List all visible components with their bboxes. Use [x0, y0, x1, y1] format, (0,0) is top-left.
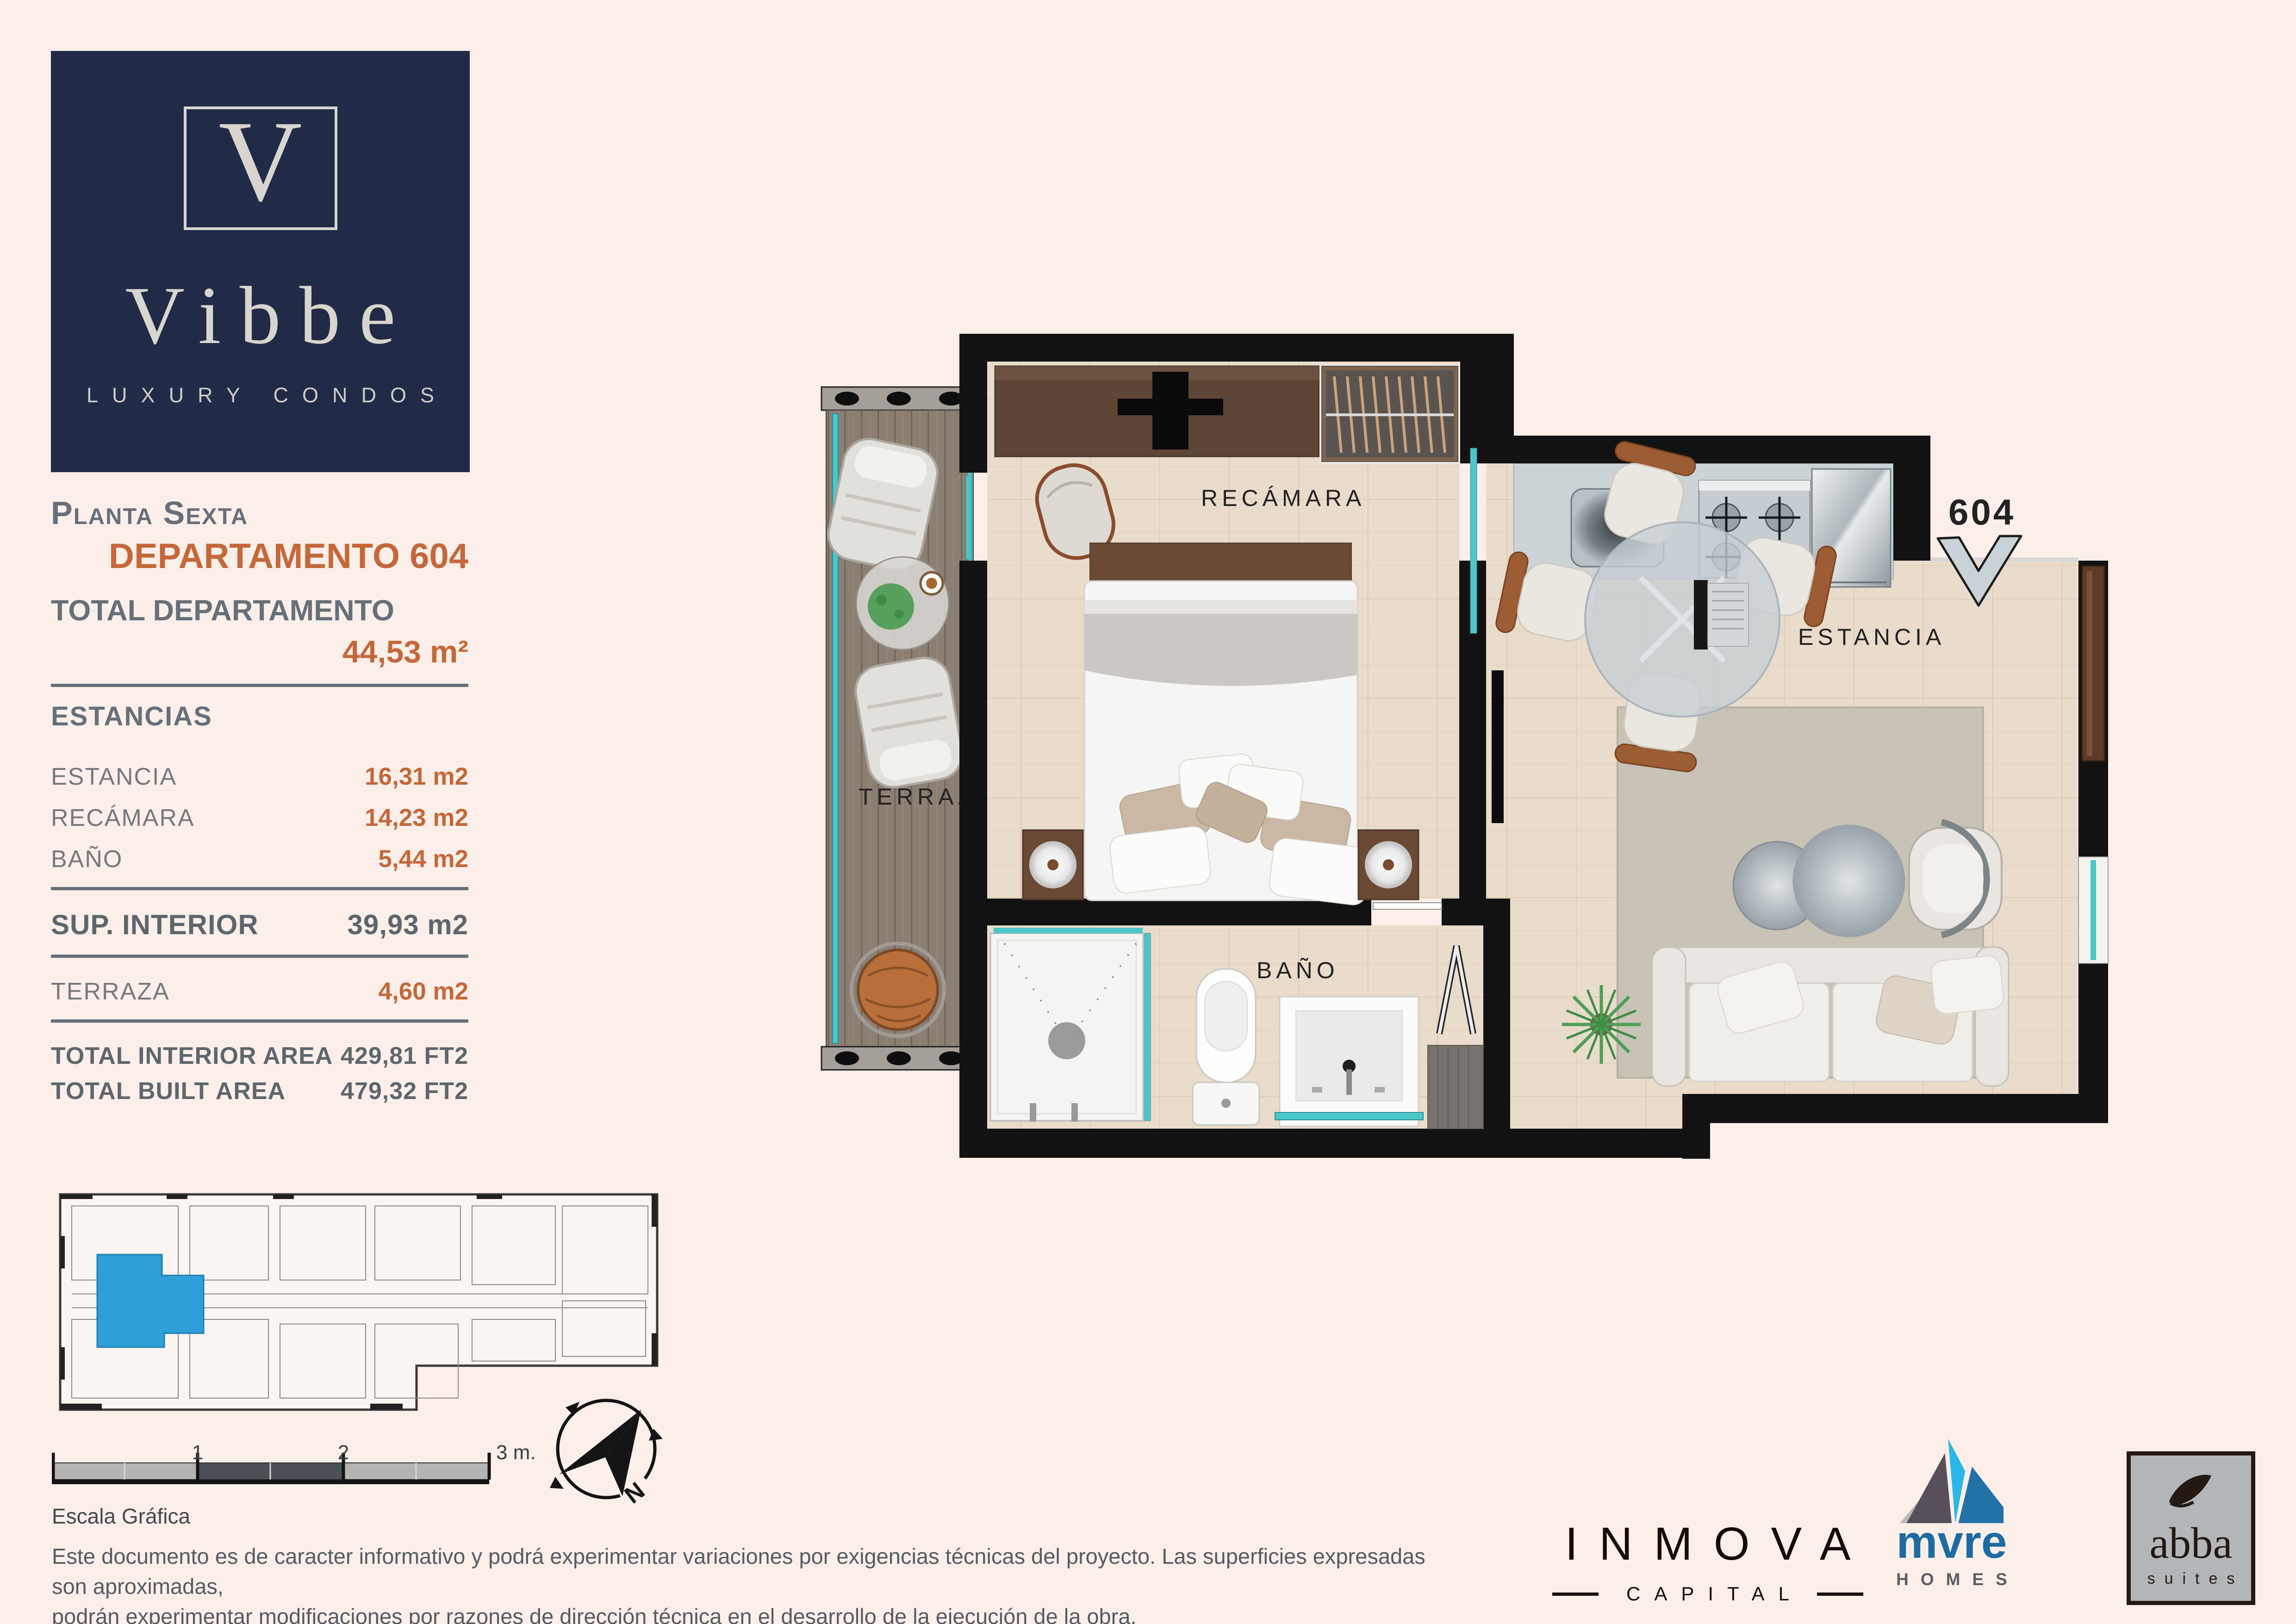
brand-tagline: LUXURY CONDOS — [73, 383, 448, 407]
abba-logo: abba suites — [2127, 1451, 2255, 1605]
total-value: 44,53 m² — [51, 634, 468, 670]
room-label: RECÁMARA — [51, 804, 195, 832]
scale-tick-1: 1 — [192, 1443, 203, 1464]
disclaimer-line: Este documento es de caracter informativ… — [52, 1542, 1445, 1602]
brand-name: Vibbe — [106, 274, 414, 356]
terrace-table — [856, 557, 949, 650]
plant — [1562, 985, 1641, 1064]
brand-monogram: V — [218, 104, 302, 219]
rooms-list: ESTANCIA 16,31 m2 RECÁMARA 14,23 m2 BAÑO… — [51, 762, 468, 873]
scale-tick-2: 2 — [338, 1443, 349, 1464]
total-row-label: TOTAL INTERIOR AREA — [51, 1042, 333, 1070]
dash-icon — [1552, 1593, 1599, 1596]
unit-number: 604 — [1948, 492, 2016, 532]
mvre-name: mvre — [1896, 1519, 2007, 1565]
room-value: 5,44 m2 — [379, 845, 468, 873]
total-row-label: TOTAL BUILT AREA — [51, 1077, 286, 1105]
abba-sub-label: suites — [2138, 1570, 2244, 1588]
disclaimer: Este documento es de caracter informativ… — [52, 1542, 1445, 1624]
floor-title: Planta Sexta — [51, 494, 468, 531]
interior-label: SUP. INTERIOR — [51, 909, 259, 941]
armchair — [1909, 822, 2002, 935]
scale-caption: Escala Gráfica — [52, 1504, 190, 1529]
total-row: TOTAL INTERIOR AREA 429,81 FT2 — [51, 1042, 468, 1070]
room-row: RECÁMARA 14,23 m2 — [51, 804, 468, 832]
interior-value: 39,93 m2 — [347, 909, 468, 941]
inmova-logo: INMOVA CAPITAL — [1509, 1518, 1907, 1605]
inmova-name: INMOVA — [1509, 1518, 1907, 1571]
abba-leaf-icon — [2165, 1468, 2216, 1519]
brand-monogram-frame: V — [184, 106, 337, 230]
divider — [51, 1019, 468, 1023]
totals-list: TOTAL INTERIOR AREA 429,81 FT2 TOTAL BUI… — [51, 1042, 468, 1105]
room-value: 16,31 m2 — [365, 762, 468, 791]
interior-row: SUP. INTERIOR 39,93 m2 — [51, 909, 468, 941]
bedroom-label: RECÁMARA — [1201, 485, 1365, 511]
scale-bar: 1 2 3 m. — [52, 1443, 542, 1494]
divider — [51, 887, 468, 890]
headboard — [1090, 543, 1351, 581]
dash-icon — [1817, 1593, 1863, 1596]
vanity — [1275, 997, 1423, 1126]
bed — [1084, 543, 1371, 906]
disclaimer-line: podrán experimentar modificaciones por r… — [52, 1602, 1445, 1624]
unit-specs: Planta Sexta DEPARTAMENTO 604 TOTAL DEPA… — [51, 494, 468, 1105]
nightstand — [1023, 830, 1083, 899]
living-label: ESTANCIA — [1798, 624, 1945, 650]
nightstand — [1358, 830, 1419, 899]
inmova-sub-label: CAPITAL — [1612, 1583, 1803, 1605]
terrace-door-glass — [966, 476, 971, 559]
tv-panel — [1492, 670, 1504, 823]
total-row-value: 479,32 FT2 — [341, 1077, 468, 1105]
inmova-sub: CAPITAL — [1509, 1583, 1907, 1605]
bathroom-door-leaf — [1373, 903, 1442, 909]
terrace-value: 4,60 m2 — [379, 977, 468, 1006]
mvre-sub-label: HOMES — [1884, 1570, 2019, 1589]
vanity-glass-shelf — [1275, 1112, 1423, 1120]
total-row: TOTAL BUILT AREA 479,32 FT2 — [51, 1077, 468, 1105]
divider — [51, 955, 468, 958]
terrace-row: TERRAZA 4,60 m2 — [51, 977, 468, 1006]
key-plan — [51, 1181, 666, 1419]
mvre-logo: mvre HOMES — [1880, 1435, 2023, 1589]
sliding-door-glass — [1470, 448, 1477, 633]
total-label: TOTAL DEPARTAMENTO — [51, 594, 468, 627]
shower-glass — [1145, 933, 1151, 1121]
lounge-chair — [852, 654, 966, 791]
closet — [1320, 365, 1459, 463]
floorplan: TERRAZA — [812, 300, 2131, 1180]
window-glass — [2091, 860, 2096, 960]
terrace-basket — [852, 943, 944, 1036]
rooms-heading: ESTANCIAS — [51, 701, 468, 732]
mvre-mountain-icon — [1896, 1435, 2007, 1525]
scale-tick-3: 3 m. — [496, 1443, 536, 1464]
bathroom-label: BAÑO — [1257, 957, 1339, 983]
brand-logo: V Vibbe LUXURY CONDOS — [51, 51, 470, 472]
bath-cabinet — [1428, 1045, 1483, 1129]
laptop-icon — [1694, 580, 1708, 650]
room-row: BAÑO 5,44 m2 — [51, 845, 468, 873]
page: V Vibbe LUXURY CONDOS Planta Sexta DEPAR… — [0, 0, 2296, 1624]
entry-door-leaf — [2082, 566, 2104, 761]
room-label: ESTANCIA — [51, 763, 177, 791]
terrace-label: TERRAZA — [51, 978, 170, 1006]
unit-title: DEPARTAMENTO 604 — [51, 536, 468, 576]
total-row-value: 429,81 FT2 — [341, 1042, 468, 1070]
toilet — [1193, 969, 1259, 1125]
coffee-table — [1793, 825, 1904, 937]
room-row: ESTANCIA 16,31 m2 — [51, 762, 468, 791]
abba-name: abba — [2149, 1521, 2232, 1565]
compass: N — [537, 1384, 676, 1523]
room-value: 14,23 m2 — [365, 804, 468, 832]
shower — [990, 928, 1151, 1122]
room-label: BAÑO — [51, 845, 123, 873]
divider — [51, 684, 468, 687]
